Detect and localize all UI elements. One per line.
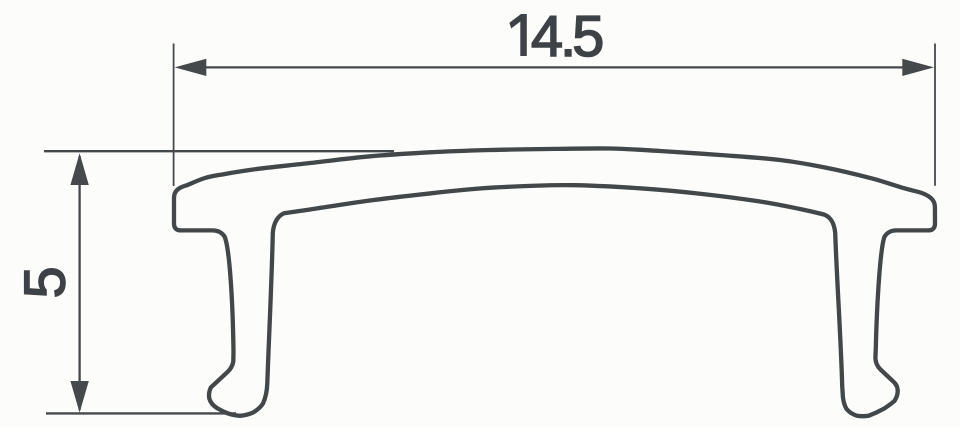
svg-text:4: 4	[531, 5, 563, 69]
svg-text:5: 5	[572, 5, 604, 69]
svg-text:5: 5	[14, 266, 78, 298]
